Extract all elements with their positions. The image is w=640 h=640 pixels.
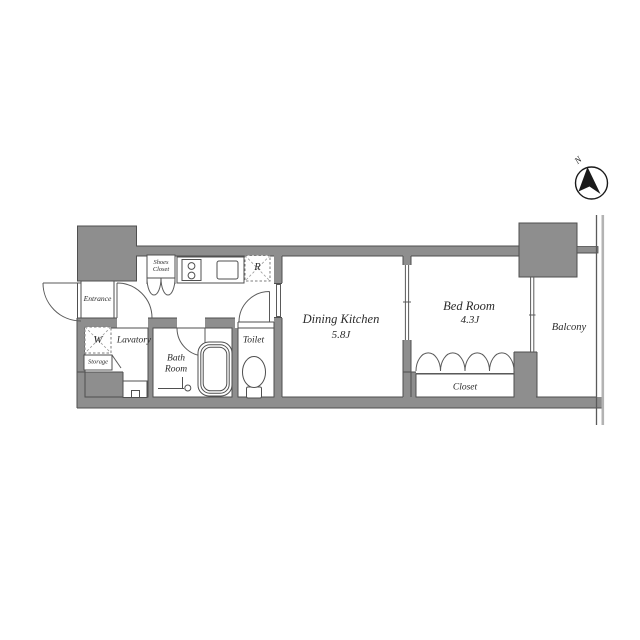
shoes-closet-bifold [147, 278, 175, 295]
floor-plan: Entrance Shoes Closet Storage W Lavatory… [0, 0, 640, 640]
entrance-door-swing [43, 283, 81, 321]
wall-bottom-band [77, 397, 604, 408]
washbasin [123, 381, 147, 398]
area-label-bed-room: 4.3J [461, 313, 480, 325]
wall-lavatory-top [77, 318, 117, 328]
wall-pillar-top-right [519, 223, 577, 277]
wall-balcony-top-band [577, 247, 598, 254]
label-refrigerator: R [254, 262, 260, 274]
dk-room-side-edges [282, 256, 403, 397]
wall-corner-bottom-left [77, 372, 123, 398]
bathtub [198, 342, 232, 396]
wall-dk-west-upper [274, 256, 282, 283]
bath-faucet-drain [158, 377, 191, 391]
wall-partition-lower [403, 340, 411, 372]
room-label-entrance: Entrance [84, 295, 112, 304]
room-label-dining-kitchen: Dining Kitchen [303, 312, 380, 326]
room-label-storage: Storage [88, 358, 108, 365]
balcony-window [529, 277, 536, 352]
sliding-door-dk-bedroom [403, 265, 411, 340]
room-outlines [81, 256, 514, 397]
area-label-dining-kitchen: 5.8J [332, 328, 351, 340]
dk-door-panel [277, 285, 281, 317]
room-label-balcony: Balcony [552, 322, 586, 334]
dk-outline [282, 256, 403, 397]
wall-partition-block [403, 372, 416, 397]
toilet-door-swing [239, 292, 270, 323]
room-label-lavatory: Lavatory [117, 335, 151, 346]
wall-bath-toilet-divider [232, 328, 238, 397]
closet-bifold-doors [416, 353, 514, 374]
wall-window-south-block [514, 352, 537, 397]
lavatory-door-swing [117, 283, 152, 318]
wall-bath-top-right [205, 318, 235, 328]
room-label-bed-room: Bed Room [443, 299, 495, 313]
label-washing-machine: W [93, 334, 102, 346]
room-label-shoes-closet: Shoes Closet [148, 259, 174, 273]
room-label-closet: Closet [453, 382, 477, 393]
wall-top-band [136, 246, 519, 256]
toilet-door-head [238, 322, 274, 328]
toilet-fixture [243, 357, 266, 399]
kitchen-sink [217, 261, 238, 279]
sliding-elements [277, 265, 536, 352]
room-label-toilet: Toilet [243, 336, 264, 347]
stove-burners [182, 260, 201, 281]
wall-partition-upper [403, 256, 411, 265]
bedroom-side-edges [411, 256, 519, 397]
room-label-bath-room: Bath Room [159, 353, 193, 374]
wall-pillar-top-left [78, 226, 137, 281]
storage-door-leaf [112, 355, 121, 368]
compass [576, 167, 608, 199]
wall-bath-top-left [148, 318, 177, 328]
wall-dk-west-lower [274, 318, 282, 397]
